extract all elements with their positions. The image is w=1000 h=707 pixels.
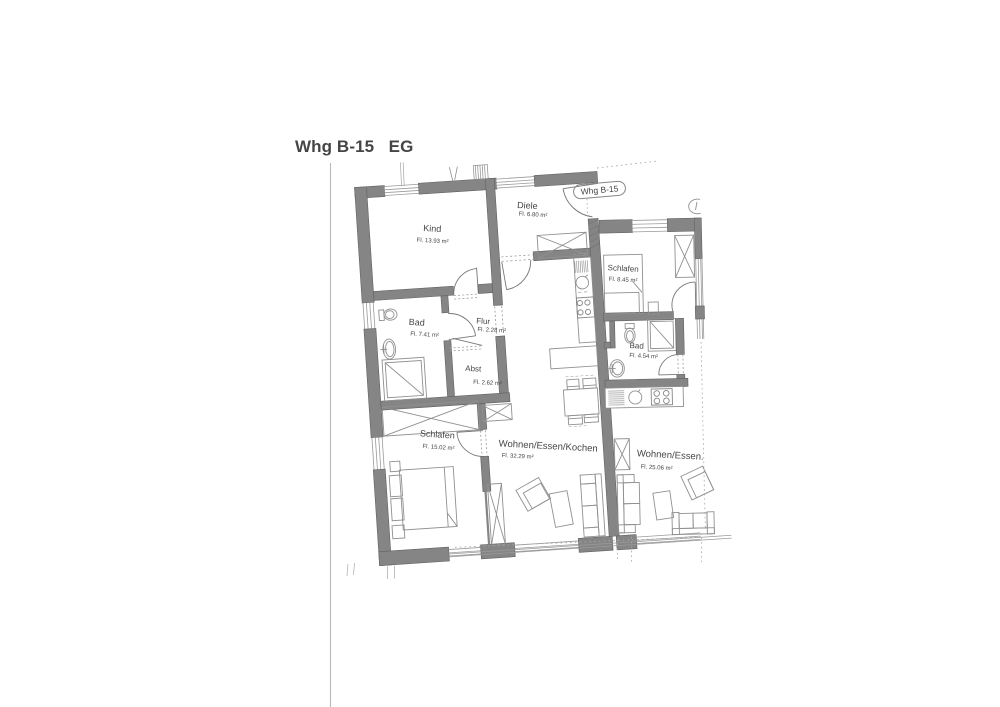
svg-text:Abst: Abst: [465, 364, 482, 374]
svg-text:Diele: Diele: [517, 200, 538, 211]
svg-text:Kind: Kind: [423, 223, 442, 234]
svg-text:Whg B-15 EG: Whg B-15 EG: [295, 137, 413, 156]
svg-text:Bad: Bad: [629, 341, 644, 351]
svg-text:Flur: Flur: [476, 316, 491, 326]
svg-text:Bad: Bad: [408, 317, 425, 328]
svg-text:Schlafen: Schlafen: [607, 263, 639, 274]
